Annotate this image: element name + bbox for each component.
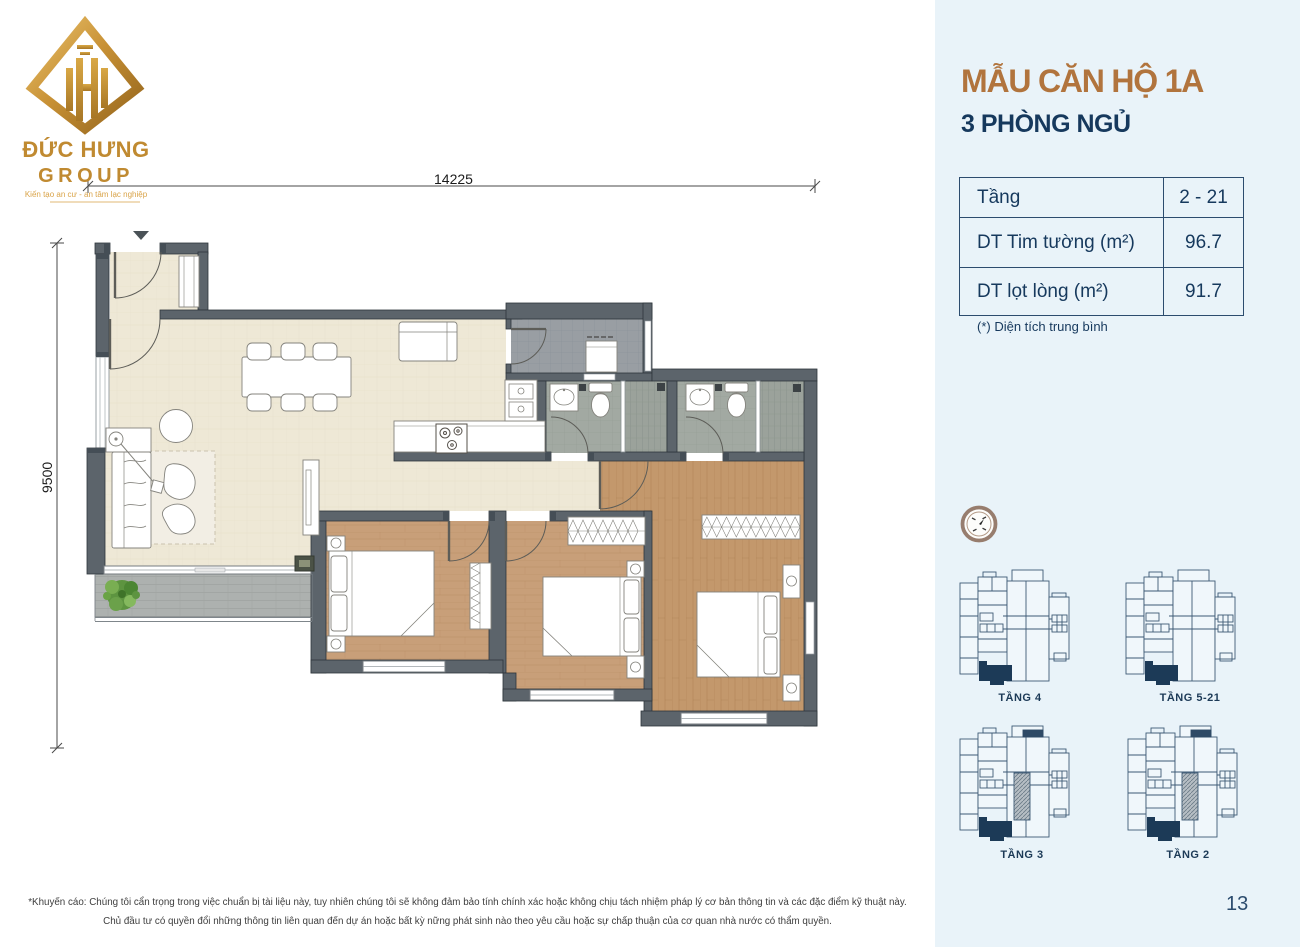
svg-text:TẦNG 2: TẦNG 2 <box>1166 848 1209 861</box>
svg-text:TẦNG 3: TẦNG 3 <box>1000 848 1043 861</box>
svg-text:9500: 9500 <box>39 462 55 493</box>
svg-text:Kiến tạo an cư - an tâm lạc ng: Kiến tạo an cư - an tâm lạc nghiệp <box>25 190 148 199</box>
svg-text:TẦNG 5-21: TẦNG 5-21 <box>1160 691 1221 704</box>
svg-text:TẦNG 4: TẦNG 4 <box>998 691 1042 704</box>
svg-text:14225: 14225 <box>434 171 473 187</box>
svg-text:GROUP: GROUP <box>38 165 134 187</box>
svg-text:ĐỨC HƯNG: ĐỨC HƯNG <box>22 137 149 162</box>
